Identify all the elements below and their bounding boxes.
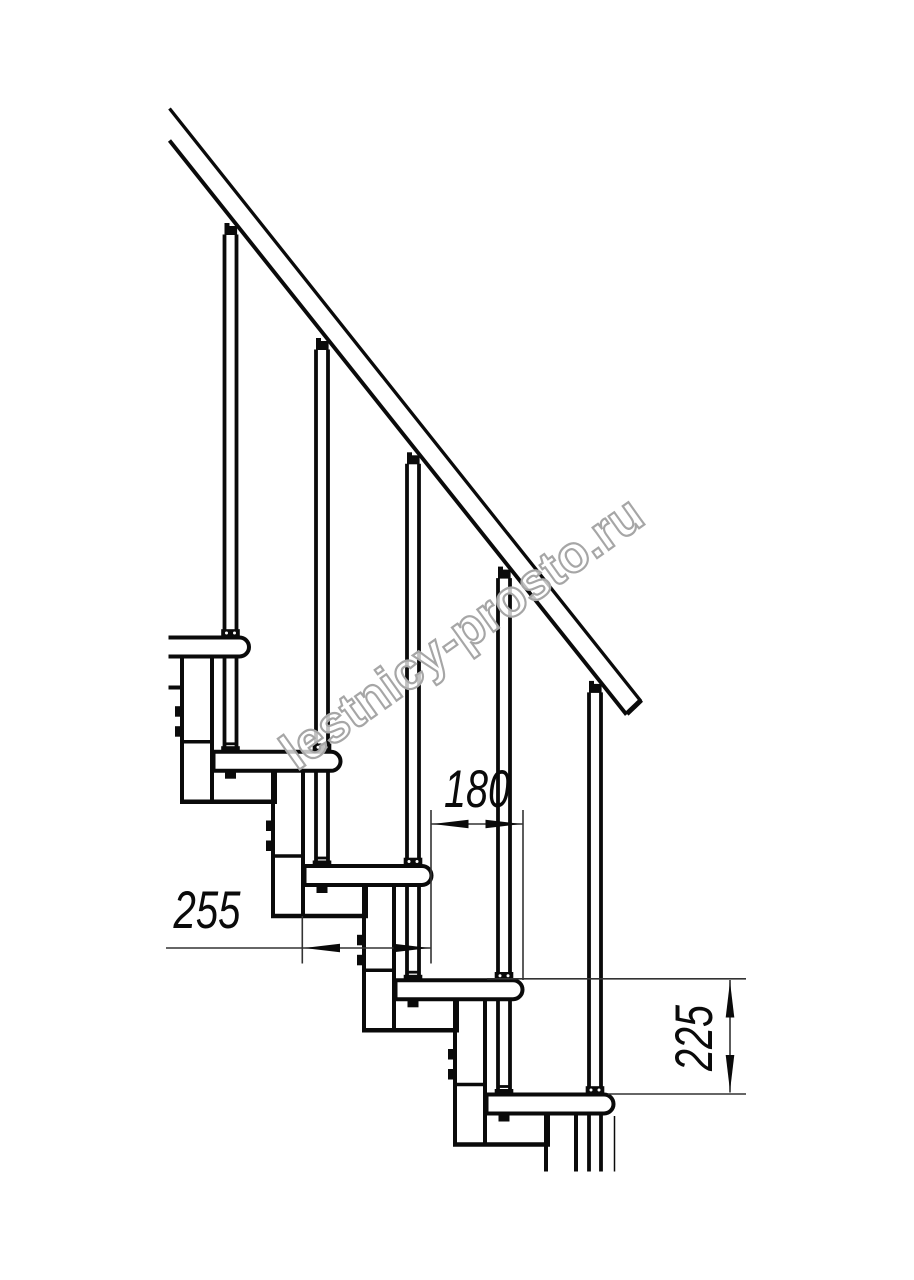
- svg-text:225: 225: [665, 1005, 724, 1072]
- svg-text:180: 180: [444, 760, 510, 819]
- svg-text:255: 255: [173, 881, 241, 940]
